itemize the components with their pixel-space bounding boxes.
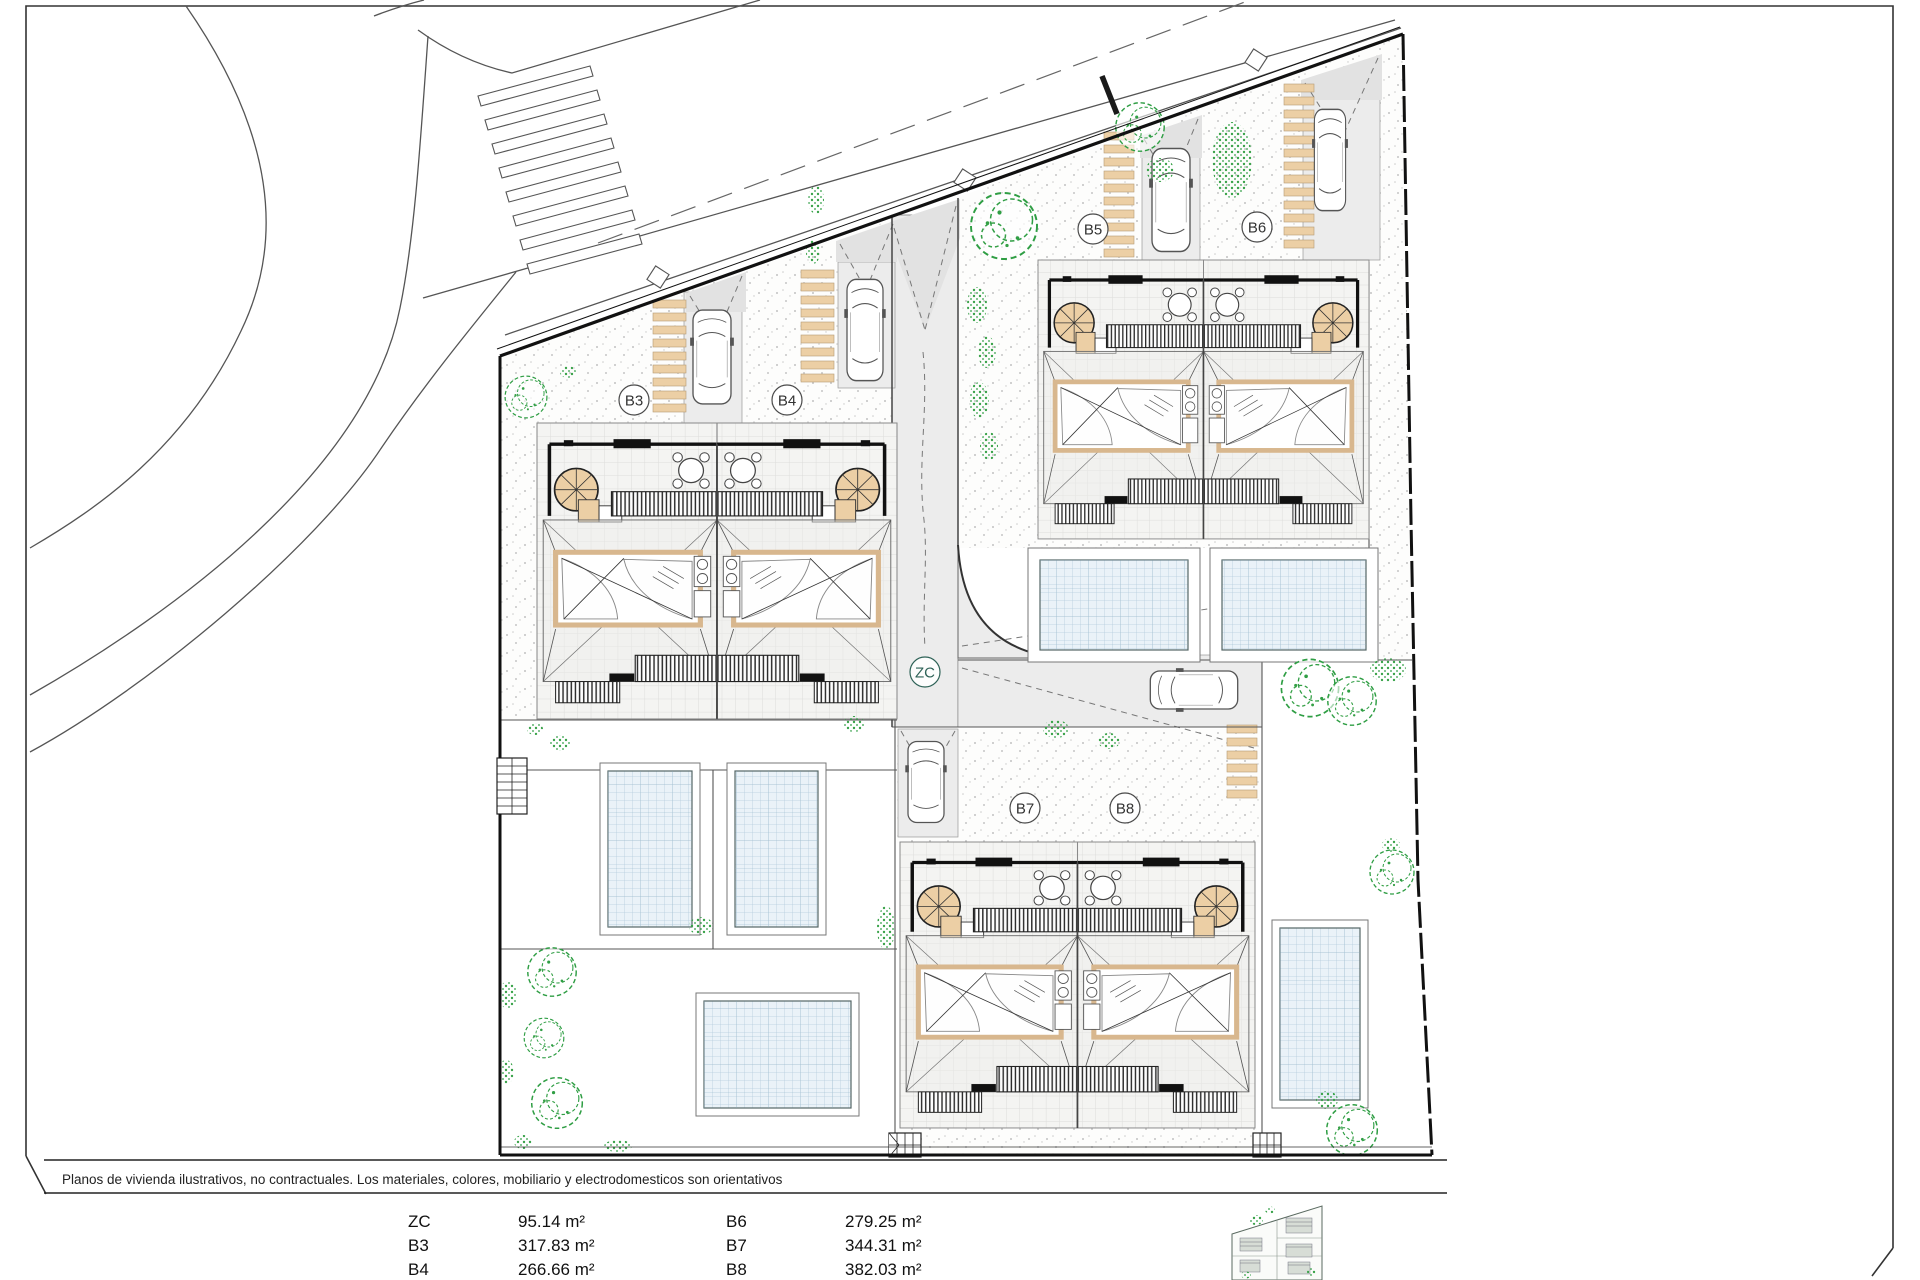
junction-curve	[418, 0, 760, 73]
svg-text:B6: B6	[1248, 220, 1266, 237]
disclaimer-text: Planos de vivienda ilustrativos, no cont…	[62, 1172, 783, 1187]
junction-curve-outer	[374, 0, 424, 16]
svg-text:B5: B5	[1084, 222, 1102, 239]
table-label: B3	[408, 1236, 429, 1255]
pool-b4	[727, 763, 826, 935]
area-table: ZC 95.14 m² B6 279.25 m² B3 317.83 m² B7…	[408, 1212, 922, 1279]
pedestrian-crosswalk	[478, 66, 642, 274]
label-b3: B3	[619, 385, 649, 415]
label-zc: ZC	[910, 657, 940, 687]
plan-sheet: B3 B4 B5 B6 B7 B8 ZC Planos de vivienda …	[0, 0, 1920, 1280]
roundabout-outer-curb	[30, 6, 266, 548]
pool-b7	[696, 993, 859, 1116]
b3-walkway	[653, 300, 686, 412]
table-label: B4	[408, 1260, 429, 1279]
table-label: B7	[726, 1236, 747, 1255]
site-overview-minimap	[1232, 1206, 1322, 1280]
table-value: 344.31 m²	[845, 1236, 922, 1255]
b4-walkway	[801, 270, 834, 382]
manhole-cover-icon	[1245, 49, 1267, 71]
stairs-west	[497, 758, 527, 814]
car-b6	[1312, 109, 1348, 210]
label-b6: B6	[1242, 212, 1272, 242]
site-plan-drawing: B3 B4 B5 B6 B7 B8 ZC Planos de vivienda …	[0, 0, 1920, 1280]
stairs-south-2	[1253, 1133, 1281, 1157]
gravel-below-b7-b8	[897, 1128, 1257, 1155]
car-b7	[905, 742, 946, 823]
survey-tick	[1102, 76, 1117, 114]
car-b3	[690, 310, 734, 404]
car-b4	[844, 279, 885, 380]
svg-text:B3: B3	[625, 393, 643, 410]
table-value: 382.03 m²	[845, 1260, 922, 1279]
table-label: ZC	[408, 1212, 431, 1231]
svg-text:B8: B8	[1116, 801, 1134, 818]
table-label: B6	[726, 1212, 747, 1231]
road-edge-south	[30, 272, 516, 752]
svg-text:ZC: ZC	[915, 665, 935, 682]
table-value: 317.83 m²	[518, 1236, 595, 1255]
car-zc	[1150, 668, 1237, 712]
label-b4: B4	[772, 385, 802, 415]
building-block-b7-b8	[900, 842, 1255, 1128]
building-block-b3-b4	[537, 423, 897, 719]
table-value: 95.14 m²	[518, 1212, 585, 1231]
pool-b8	[1272, 920, 1368, 1108]
table-value: 279.25 m²	[845, 1212, 922, 1231]
pool-b6	[1210, 548, 1378, 662]
road-edge-west	[30, 36, 428, 695]
table-label: B8	[726, 1260, 747, 1279]
label-b7: B7	[1010, 793, 1040, 823]
svg-text:B7: B7	[1016, 801, 1034, 818]
label-b5: B5	[1078, 214, 1108, 244]
pool-b5	[1028, 548, 1200, 662]
svg-text:B4: B4	[778, 393, 796, 410]
label-b8: B8	[1110, 793, 1140, 823]
stairs-south-1	[889, 1133, 921, 1157]
table-value: 266.66 m²	[518, 1260, 595, 1279]
title-band: Planos de vivienda ilustrativos, no cont…	[44, 1160, 1447, 1193]
building-block-b5-b6	[1038, 260, 1369, 539]
pool-b3	[600, 763, 700, 935]
